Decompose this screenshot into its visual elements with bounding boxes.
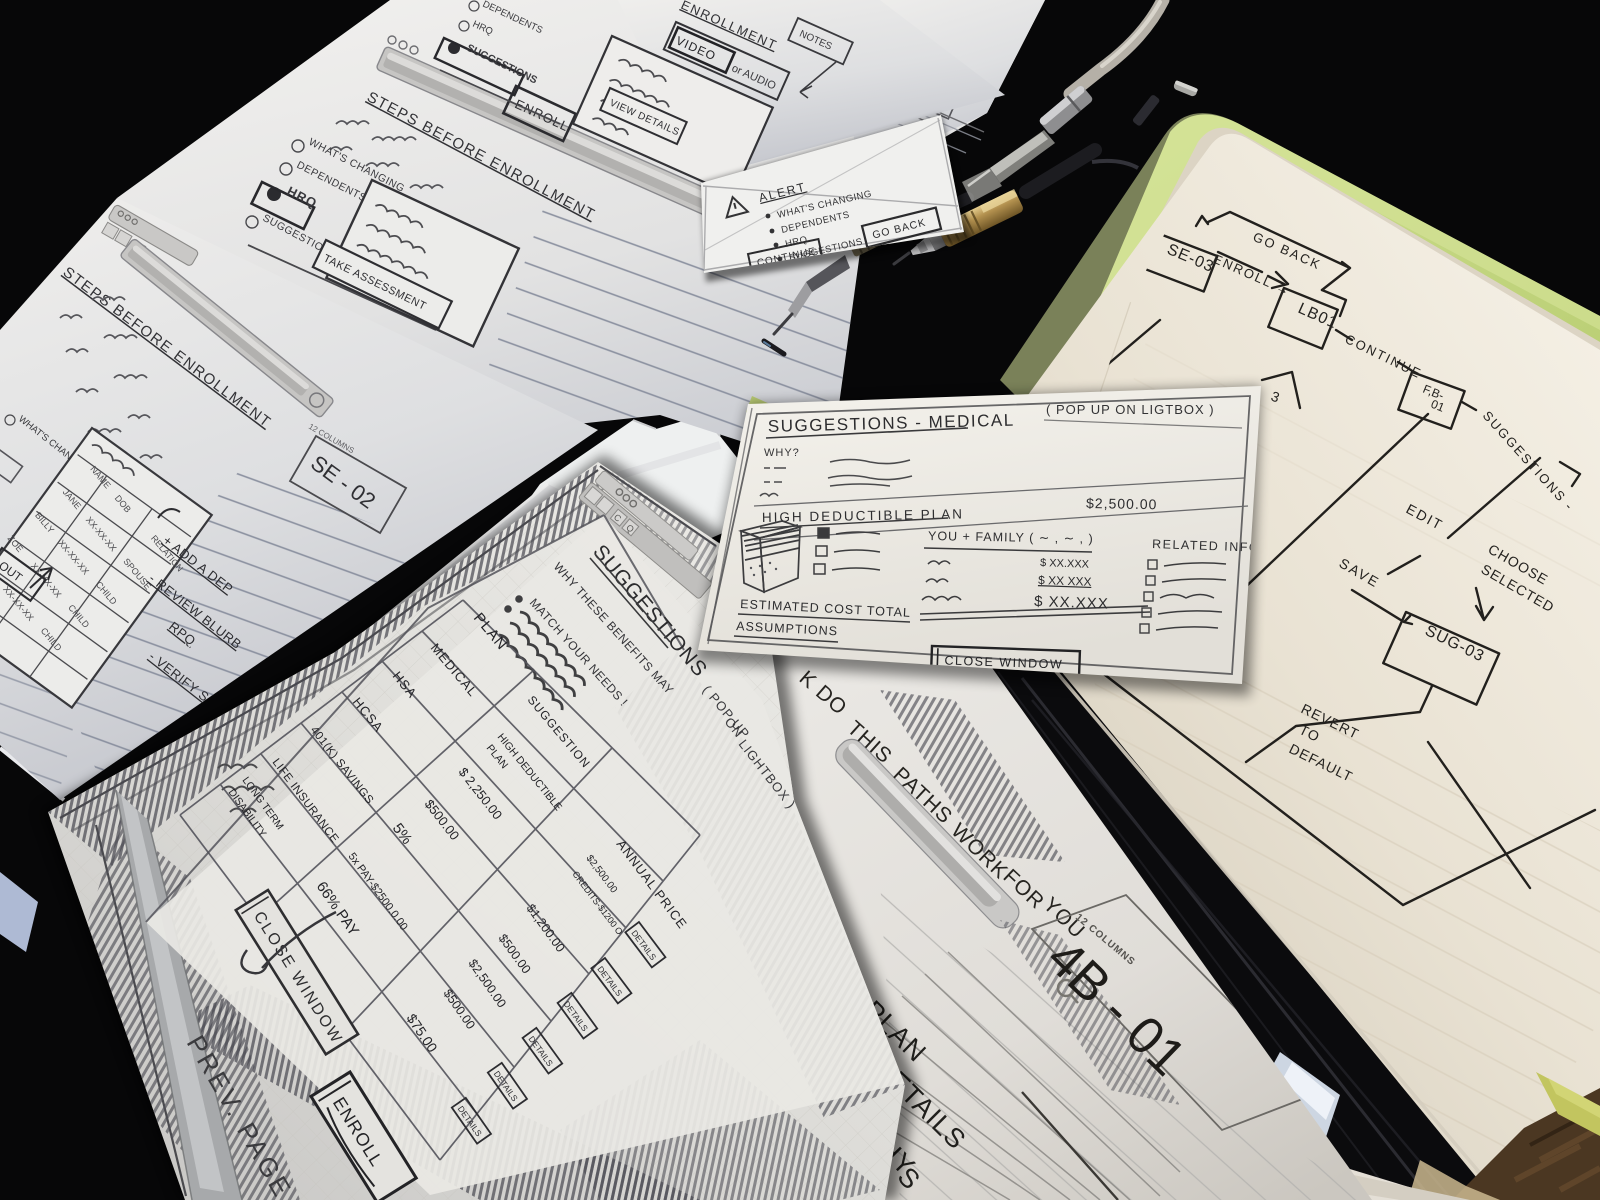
svg-text:WHY?: WHY?	[764, 447, 800, 459]
svg-text:$2,500.00: $2,500.00	[1086, 495, 1158, 512]
svg-text:$ XX.XXX: $ XX.XXX	[1040, 557, 1090, 571]
svg-text:( POP UP ON LIGTBOX ): ( POP UP ON LIGTBOX )	[1046, 402, 1215, 417]
svg-text:$ XX XXX: $ XX XXX	[1038, 573, 1092, 589]
svg-text:$ XX.XXX: $ XX.XXX	[1034, 593, 1109, 613]
svg-text:YOU + FAMILY ( ∼ , ∼ , ): YOU + FAMILY ( ∼ , ∼ , )	[928, 529, 1094, 546]
